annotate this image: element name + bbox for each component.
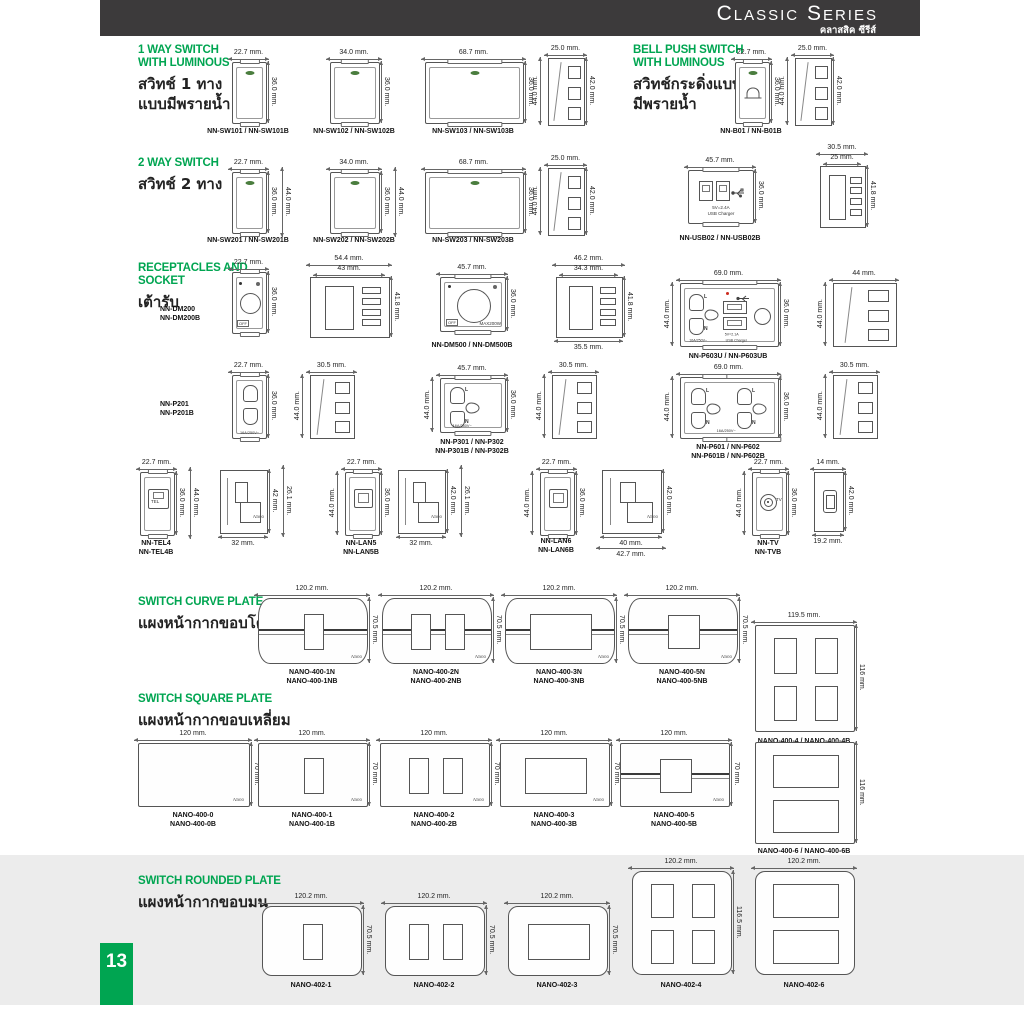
dim-line xyxy=(624,595,740,596)
dim-label: 44.0 mm. xyxy=(294,391,301,420)
fig-nano-402-1 xyxy=(262,906,362,976)
usb-port-pins xyxy=(719,185,727,192)
usb-charger-label: USB Charger xyxy=(726,339,747,343)
usb-port xyxy=(699,181,713,201)
dim-line xyxy=(228,59,269,60)
plate-opening xyxy=(525,758,587,794)
fig-nano-400-3n: Nano xyxy=(505,598,615,664)
terminal xyxy=(577,382,592,394)
model-label: NN-USB02 / NN-USB02B xyxy=(650,234,790,243)
dim-line xyxy=(676,280,781,281)
dim-label: 36.0 mm. xyxy=(383,77,390,106)
dim-label: 70 mm. xyxy=(733,762,740,785)
dim-line xyxy=(554,341,623,342)
section-thai-two-way-switch: สวิทช์ 2 ทาง xyxy=(138,174,222,194)
fig-switch-side xyxy=(548,58,585,126)
plate-opening xyxy=(773,755,839,788)
model-label: NANO-400-2NANO-400-2B xyxy=(364,811,504,829)
dim-label: 45.7 mm. xyxy=(436,365,508,373)
dim-line xyxy=(825,282,826,346)
dim-label: 120 mm. xyxy=(376,730,492,738)
dim-line xyxy=(436,375,508,376)
l-label: L xyxy=(465,387,468,393)
dim-label: 42.0 mm. xyxy=(588,186,595,215)
fig-p601-side xyxy=(833,375,878,439)
section-thai-bell-push-switch: สวิทช์กระดิ่งแบบ มีพรายน้ำ xyxy=(633,74,742,114)
nano-logo: Nano xyxy=(351,654,362,659)
header-bar: Classic Series คลาสสิค ซีรีส์ xyxy=(100,0,920,36)
dim-label: 120.2 mm. xyxy=(381,893,487,901)
dimension: 41.8 mm. xyxy=(624,276,634,337)
dim-label: 70.5 mm. xyxy=(488,925,495,954)
dimension: 70 mm. xyxy=(369,742,379,806)
dim-label: 36.0 mm. xyxy=(509,289,516,318)
page-number-box: 13 xyxy=(100,943,133,1005)
dimension: 35.5 mm. xyxy=(554,339,623,352)
max-load-label: MAX200W xyxy=(479,321,501,326)
dim-line xyxy=(381,903,487,904)
dimension: 42.0 mm. xyxy=(845,471,855,531)
side-profile-line xyxy=(405,478,406,525)
terminal xyxy=(858,402,873,414)
dim-label: 44.0 mm. xyxy=(532,186,539,215)
dim-line xyxy=(812,535,844,536)
rating-label: 16A/250V~ xyxy=(453,423,472,427)
dim-line xyxy=(751,868,857,869)
dim-line xyxy=(616,740,732,741)
model-label: NANO-402-4 xyxy=(611,981,751,990)
dim-line xyxy=(501,595,617,596)
terminal xyxy=(868,310,889,322)
dim-line xyxy=(447,469,448,533)
vent-slot xyxy=(362,319,381,326)
dim-label: 70.5 mm. xyxy=(365,925,372,954)
dimension: 120.2 mm. xyxy=(628,858,734,869)
dimension: 69.0 mm. xyxy=(676,270,781,281)
dim-line xyxy=(269,469,270,533)
fig-nano-400-1n: Nano xyxy=(258,598,368,664)
dim-label: 44 mm. xyxy=(829,270,899,278)
fig-nn-tv: TV xyxy=(752,472,787,536)
luminous-indicator xyxy=(351,181,360,185)
model-label: NN-P301 / NN-P302NN-P301B / NN-P302B xyxy=(402,438,542,456)
dimension: 32 mm. xyxy=(218,535,268,548)
dim-line xyxy=(755,169,756,223)
dim-line xyxy=(548,372,599,373)
usb-rating-label: 5V=2.1A xyxy=(725,333,739,337)
dim-label: 44.0 mm. xyxy=(524,488,531,517)
dim-label: 44.0 mm. xyxy=(424,390,431,419)
terminal xyxy=(577,421,592,433)
dim-line xyxy=(676,374,781,375)
dimension: 22.7 mm. xyxy=(228,362,269,373)
dim-label: 120 mm. xyxy=(254,730,370,738)
dim-label: 44.0 mm. xyxy=(329,488,336,517)
fig-nn-tel4: TEL xyxy=(140,472,175,536)
dimension: 22.7 mm. xyxy=(136,459,177,470)
fig-bell-side xyxy=(795,58,832,126)
section-title-two-way-switch: 2 WAY SWITCH xyxy=(138,157,219,170)
vent-slot xyxy=(850,177,862,184)
dim-label: 120.2 mm. xyxy=(501,585,617,593)
dim-line xyxy=(540,57,541,125)
fig-nn-sw203 xyxy=(425,172,524,234)
dim-label: 22.7 mm. xyxy=(228,159,269,167)
dim-label: 70.5 mm. xyxy=(371,615,378,644)
model-label: NN-B01 / NN-B01B xyxy=(681,127,821,136)
nano-logo: Nano xyxy=(351,797,362,802)
section-thai-switch-square-plate: แผงหน้ากากขอบเหลี่ยม xyxy=(138,710,291,730)
dimension: 44.0 mm. xyxy=(816,374,826,438)
dimension: 14 mm. xyxy=(810,459,846,470)
plate-opening xyxy=(651,884,674,918)
vent-slot xyxy=(600,319,616,326)
dim-line xyxy=(432,377,433,432)
vent-slot xyxy=(850,209,862,216)
fig-nano-400-6 xyxy=(755,742,855,844)
model-label: NANO-400-1NNANO-400-1NB xyxy=(242,668,382,686)
dim-label: 45.7 mm. xyxy=(436,264,508,272)
dim-label: 120 mm. xyxy=(616,730,732,738)
dimension: 22.7 mm. xyxy=(341,459,382,470)
mount-tab xyxy=(454,330,491,335)
dim-line xyxy=(369,597,370,663)
plate-opening xyxy=(773,884,839,918)
model-label: NN-P603U / NN-P603UB xyxy=(658,352,798,361)
dim-line xyxy=(396,537,446,538)
vent-slot xyxy=(362,309,381,316)
luminous-indicator xyxy=(470,71,479,75)
dim-line xyxy=(856,624,857,731)
connector-tip xyxy=(826,495,835,509)
socket-hole-l xyxy=(691,388,706,405)
mount-tab xyxy=(702,345,757,350)
dim-line xyxy=(313,275,385,276)
dim-line xyxy=(733,870,734,974)
luminous-indicator xyxy=(245,71,254,75)
dimension: 116 mm. xyxy=(856,624,866,731)
dim-label: 36.0 mm. xyxy=(270,391,277,420)
model-label: NN-SW103 / NN-SW103B xyxy=(403,127,543,136)
plate-opening xyxy=(304,758,324,794)
dimension: 42 mm. xyxy=(269,469,279,533)
dim-label: 69.0 mm. xyxy=(676,364,781,372)
dim-line xyxy=(381,171,382,233)
dimension: 70.5 mm. xyxy=(609,905,619,975)
plate-opening xyxy=(303,924,323,960)
fig-tv-side xyxy=(814,472,844,532)
socket-hole-l xyxy=(243,385,258,402)
dimension: 36.0 mm. xyxy=(268,271,278,333)
dim-label: 34.0 mm. xyxy=(326,49,382,57)
dim-line xyxy=(624,276,625,337)
dim-line xyxy=(544,165,587,166)
dim-line xyxy=(525,61,526,123)
mount-tab xyxy=(239,437,259,442)
dimension: 36.0 mm. xyxy=(381,471,391,535)
dim-label: 26.1 mm. xyxy=(285,486,292,515)
dimension: 44.0 mm. xyxy=(328,471,338,535)
section-thai-switch-rounded-plate: แผงหน้ากากขอบมน xyxy=(138,892,268,912)
dim-label: 116 mm. xyxy=(858,779,865,806)
dim-label: 30.5 mm. xyxy=(306,362,357,370)
dim-label: 69.0 mm. xyxy=(676,270,781,278)
nano-logo: Nano xyxy=(721,654,732,659)
dim-label: 68.7 mm. xyxy=(421,159,526,167)
dim-line xyxy=(672,282,673,346)
plate-opening xyxy=(692,930,715,964)
usb-port xyxy=(716,181,730,201)
dimension: 36.0 mm. xyxy=(788,471,798,535)
luminous-indicator xyxy=(470,181,479,185)
fig-nano-400-3: Nano xyxy=(500,743,610,807)
module-body xyxy=(829,175,846,220)
dim-label: 44.0 mm. xyxy=(664,299,671,328)
mount-tab xyxy=(239,332,259,337)
dimension: 116.5 mm. xyxy=(733,870,743,974)
socket-hole-l xyxy=(689,294,704,311)
dim-label: 120.2 mm. xyxy=(751,858,857,866)
dim-label: 36.0 mm. xyxy=(782,299,789,328)
dim-label: 34.0 mm. xyxy=(326,159,382,167)
dim-line xyxy=(525,171,526,233)
dimension: 22.7 mm. xyxy=(228,259,269,270)
usb-rating-label: 5V=2.4A xyxy=(689,205,753,210)
dim-label: 116 mm. xyxy=(858,664,865,691)
dim-line xyxy=(616,597,617,663)
mount-tab xyxy=(702,222,739,227)
jack-slot xyxy=(553,493,564,503)
dim-line xyxy=(788,471,789,535)
dim-line xyxy=(600,537,662,538)
dim-line xyxy=(395,167,396,237)
dimension: 44.0 mm. xyxy=(663,376,673,438)
model-label: NANO-400-3NANO-400-3B xyxy=(484,811,624,829)
fig-nano-400-1: Nano xyxy=(258,743,368,807)
dimension: 36.0 mm. xyxy=(268,61,278,123)
nano-logo: Nano xyxy=(713,797,724,802)
fig-nn-sw201 xyxy=(232,172,267,234)
dim-label: 44.0 mm. xyxy=(192,488,199,517)
dim-line xyxy=(787,57,788,125)
dim-line xyxy=(731,59,772,60)
plate-opening xyxy=(774,686,797,722)
jack-housing xyxy=(418,502,439,523)
dim-line xyxy=(744,471,745,535)
dim-line xyxy=(228,372,269,373)
dim-line xyxy=(369,742,370,806)
dimension: 44 mm. xyxy=(829,270,899,281)
plate-opening xyxy=(411,614,431,650)
fig-nn-lan6 xyxy=(540,472,575,536)
dimension: 68.7 mm. xyxy=(421,49,526,60)
side-profile-line xyxy=(610,478,611,525)
dim-label: 116.5 mm. xyxy=(735,906,742,939)
dimension: 44.0 mm. xyxy=(735,471,745,535)
dim-line xyxy=(829,280,899,281)
usb-port-pins xyxy=(702,185,710,192)
dimension: 41.8 mm. xyxy=(391,276,401,337)
socket-hole-l xyxy=(737,388,752,405)
dimension: 44.0 mm. xyxy=(190,467,200,539)
dimension: 19.2 mm. xyxy=(812,533,844,546)
rating-label: 16A/250V~ xyxy=(717,428,736,432)
plate-opening xyxy=(815,686,838,722)
section-title-one-way-switch: 1 WAY SWITCH WITH LUMINOUS xyxy=(138,44,229,70)
dimension: 36.0 mm. xyxy=(755,169,765,223)
tel-label: TEL xyxy=(151,499,159,504)
plate-opening xyxy=(409,758,429,794)
dim-line xyxy=(507,276,508,331)
usb-port-pins xyxy=(727,304,742,310)
bell-icon xyxy=(746,88,759,98)
terminal xyxy=(568,66,581,79)
fig-p201-side xyxy=(310,375,355,439)
fig-dm500-side xyxy=(556,277,623,338)
dim-label: 42.0 mm. xyxy=(449,486,456,515)
dim-line xyxy=(586,57,587,125)
terminal xyxy=(815,66,828,79)
dim-label: 22.7 mm. xyxy=(228,259,269,267)
l-label: L xyxy=(752,388,755,394)
dim-label: 120.2 mm. xyxy=(258,893,364,901)
dim-line xyxy=(254,595,370,596)
dim-label: 120.2 mm. xyxy=(254,585,370,593)
dim-line xyxy=(461,465,462,537)
dimension: 22.7 mm. xyxy=(536,459,577,470)
model-label: NANO-402-6 xyxy=(734,981,874,990)
mount-tab xyxy=(726,437,781,442)
lan-jack xyxy=(354,489,373,508)
dim-label: 30.5 mm. xyxy=(816,144,868,152)
dim-label: 44.0 mm. xyxy=(817,299,824,328)
dimension: 120.2 mm. xyxy=(501,585,617,596)
dim-label: 34.3 mm. xyxy=(559,265,618,273)
dim-label: 36.0 mm. xyxy=(383,187,390,216)
plate-opening xyxy=(660,759,692,793)
catalog-page: Classic Series คลาสสิค ซีรีส์ 13 1 WAY S… xyxy=(0,0,1024,1024)
plate-opening xyxy=(530,614,592,650)
dimension: 70.5 mm. xyxy=(369,597,379,663)
fig-nano-400-5n: Nano xyxy=(628,598,738,664)
usb-charger-label: USB Charger xyxy=(689,211,753,216)
dim-line xyxy=(136,469,177,470)
dimension: 44.0 mm. xyxy=(663,282,673,346)
dimension: 36.0 mm. xyxy=(381,171,391,233)
dimension: 25.0 mm. xyxy=(544,155,587,166)
fig-nano-400-0: Nano xyxy=(138,743,250,807)
dimension: 42.0 mm. xyxy=(586,167,596,235)
dim-label: 22.7 mm. xyxy=(748,459,789,467)
fig-nn-sw103 xyxy=(425,62,524,124)
dim-line xyxy=(496,740,612,741)
dimension: 69.0 mm. xyxy=(676,364,781,375)
dim-label: 36.0 mm. xyxy=(383,488,390,517)
dim-label: 120.2 mm. xyxy=(504,893,610,901)
dim-label: 120.2 mm. xyxy=(628,858,734,866)
side-profile-line xyxy=(559,379,567,435)
fig-nn-p301: LN16A/250V~ xyxy=(440,378,506,433)
model-label: NANO-402-1 xyxy=(241,981,381,990)
fig-nano-400-2n: Nano xyxy=(382,598,492,664)
dim-line xyxy=(771,61,772,123)
dimension: 70.5 mm. xyxy=(493,597,503,663)
fig-dm200-side xyxy=(310,277,390,338)
dim-label: 42 mm. xyxy=(271,489,278,512)
terminal xyxy=(868,290,889,302)
side-profile-line xyxy=(553,172,561,231)
off-label: OFF xyxy=(446,319,458,326)
dim-line xyxy=(544,374,545,438)
dimension: 22.7 mm. xyxy=(731,49,772,60)
dim-line xyxy=(341,469,382,470)
usb-port-pins xyxy=(727,320,742,326)
socket-hole-n xyxy=(691,412,706,429)
terminal xyxy=(868,329,889,341)
dim-line xyxy=(748,469,789,470)
dim-line xyxy=(507,377,508,432)
dimension: 120.2 mm. xyxy=(258,893,364,904)
model-label: NANO-402-3 xyxy=(487,981,627,990)
terminal xyxy=(858,421,873,433)
dim-label: 70 mm. xyxy=(613,762,620,785)
dimension: 42.7 mm. xyxy=(596,546,666,559)
dim-line xyxy=(251,742,252,806)
dim-label: 70 mm. xyxy=(371,762,378,785)
fig-nn-sw101 xyxy=(232,62,267,124)
dimension: 30.5 mm. xyxy=(306,362,357,373)
dim-line xyxy=(780,282,781,346)
dim-label: 42.7 mm. xyxy=(596,551,666,559)
jack-slot xyxy=(358,493,369,503)
l-label: L xyxy=(704,294,707,300)
dimension: 70 mm. xyxy=(731,742,741,806)
plate-opening xyxy=(445,614,465,650)
dimmer-knob xyxy=(240,293,261,314)
dim-label: 70.5 mm. xyxy=(611,925,618,954)
page-number: 13 xyxy=(100,951,133,973)
fig-p301-side xyxy=(552,375,597,439)
dimension: 70.5 mm. xyxy=(616,597,626,663)
dim-label: 36.0 mm. xyxy=(757,181,764,210)
dim-line xyxy=(504,903,610,904)
fig-usb-side xyxy=(820,166,866,228)
dim-line xyxy=(609,905,610,975)
dim-line xyxy=(491,742,492,806)
vent-slot xyxy=(850,198,862,205)
dim-line xyxy=(376,740,492,741)
dimension: 26.1 mm. xyxy=(283,465,293,537)
page-title-thai: คลาสสิค ซีรีส์ xyxy=(820,23,876,38)
module-body xyxy=(569,286,593,330)
dim-line xyxy=(391,276,392,337)
n-label: N xyxy=(706,420,710,426)
plate-opening xyxy=(409,924,429,960)
rating-label: 16A/250V~ xyxy=(235,430,263,434)
dim-line xyxy=(326,59,382,60)
fig-nano-402-2 xyxy=(385,906,485,976)
dim-line xyxy=(176,471,177,535)
dim-label: 35.5 mm. xyxy=(554,344,623,352)
l-label: L xyxy=(706,388,709,394)
power-led xyxy=(726,292,729,295)
side-profile-line xyxy=(845,287,853,343)
dim-line xyxy=(833,57,834,125)
dim-line xyxy=(810,469,846,470)
terminal xyxy=(568,87,581,100)
dim-label: 25.0 mm. xyxy=(544,155,587,163)
model-label: NANO-400-5NNANO-400-5NB xyxy=(612,668,752,686)
